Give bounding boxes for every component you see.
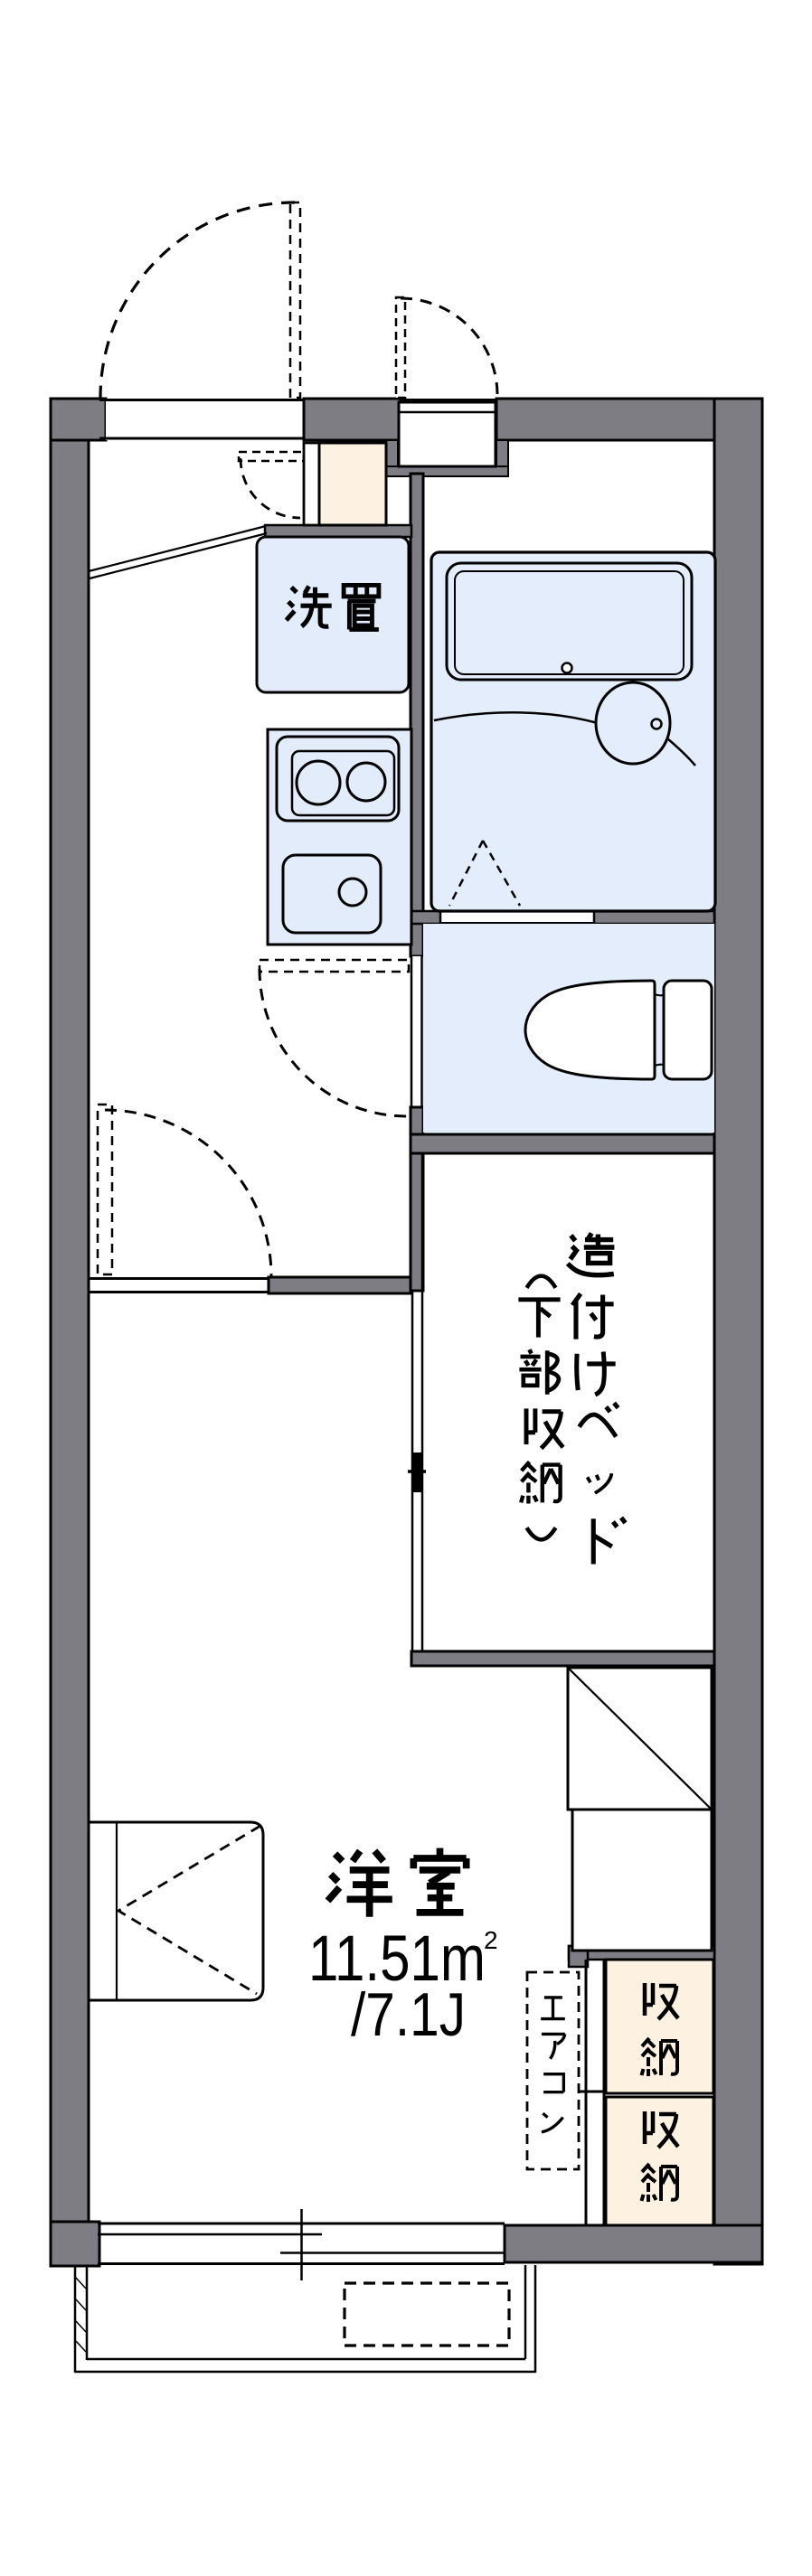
svg-text:2: 2 xyxy=(484,1926,498,1954)
svg-text:/7.1J: /7.1J xyxy=(351,1980,466,2049)
